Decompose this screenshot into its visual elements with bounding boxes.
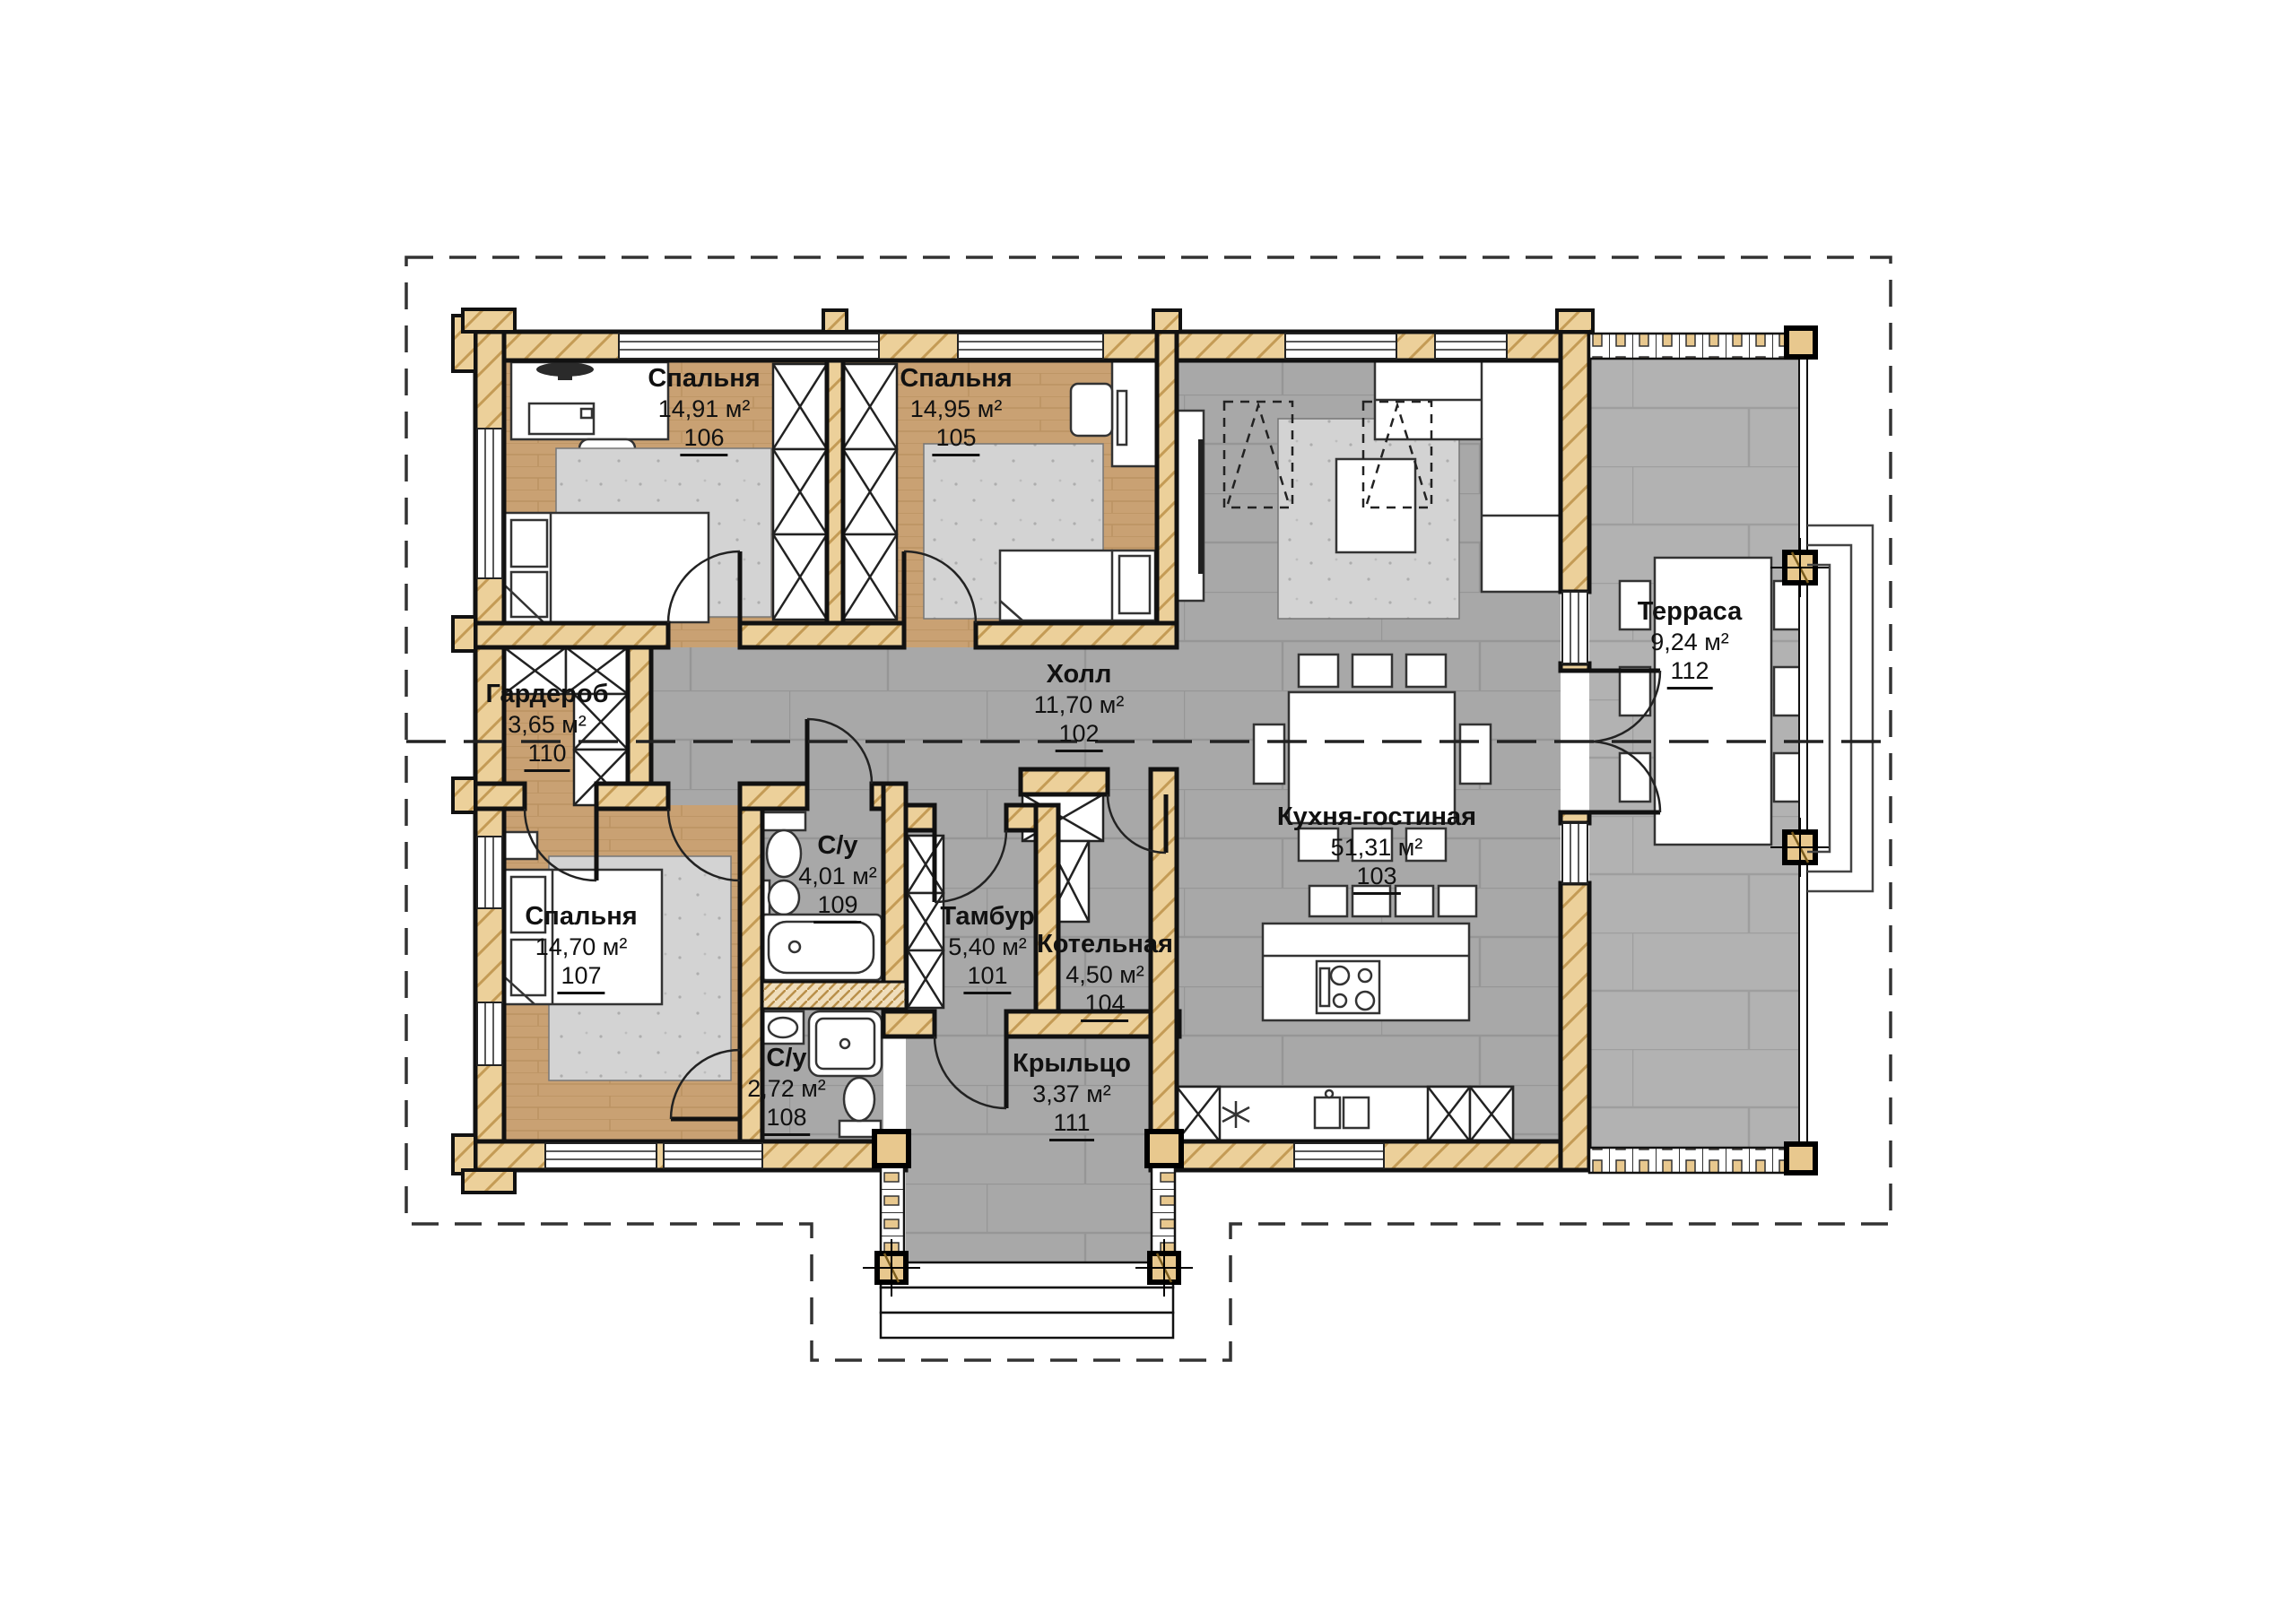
wall-wardrobe-hall — [628, 647, 651, 784]
room-area: 51,31 м² — [1277, 833, 1476, 862]
terrace-edge-right — [1799, 334, 1807, 1173]
porch-steps — [881, 1262, 1173, 1338]
room-number: 107 — [557, 961, 604, 993]
room-area: 3,37 м² — [1013, 1080, 1131, 1108]
bathtub-109 — [761, 915, 882, 980]
room-label-111: Крыльцо 3,37 м² 111 — [1013, 1048, 1131, 1141]
window-west-107b — [477, 1002, 502, 1065]
window-north-living-1 — [1285, 334, 1396, 359]
bed-106 — [504, 513, 709, 622]
room-label-109: С/у 4,01 м² 109 — [798, 830, 877, 924]
room-label-102: Холл 11,70 м² 102 — [1034, 659, 1125, 752]
room-number: 110 — [524, 739, 570, 771]
room-label-103: Кухня-гостиная 51,31 м² 103 — [1277, 802, 1476, 895]
room-number: 101 — [963, 961, 1011, 993]
window-north-living-2 — [1435, 334, 1507, 359]
room-label-106: Спальня 14,91 м² 106 — [648, 363, 760, 456]
room-number: 112 — [1666, 656, 1712, 689]
window-west-107a — [477, 837, 502, 908]
room-name: С/у — [798, 830, 877, 862]
room-area: 5,40 м² — [940, 932, 1034, 961]
room-name: Крыльцо — [1013, 1048, 1131, 1080]
wall-kitchen-terrace — [1561, 332, 1589, 592]
room-area: 9,24 м² — [1638, 628, 1743, 656]
room-area: 2,72 м² — [747, 1074, 826, 1103]
plumbing-chase — [762, 982, 906, 1009]
room-name: Спальня — [648, 363, 760, 395]
room-name: Кухня-гостиная — [1277, 802, 1476, 833]
room-number: 105 — [932, 423, 979, 455]
wall-between-bedrooms — [827, 360, 843, 623]
bed-105 — [1000, 551, 1155, 620]
room-number: 109 — [813, 890, 861, 923]
coffee-table — [1336, 459, 1415, 552]
terrace-edge-bottom — [1589, 1148, 1799, 1173]
room-area: 3,65 м² — [485, 710, 608, 739]
window-terrace-1 — [1562, 592, 1587, 664]
room-name: Спальня — [900, 363, 1012, 395]
room-label-105: Спальня 14,95 м² 105 — [900, 363, 1012, 456]
room-number: 103 — [1352, 862, 1400, 894]
wall-105-kitchen — [1157, 332, 1177, 647]
window-north-106 — [619, 334, 879, 359]
room-label-107: Спальня 14,70 м² 107 — [525, 901, 637, 994]
room-area: 4,50 м² — [1037, 960, 1173, 989]
room-label-110: Гардероб 3,65 м² 110 — [485, 679, 608, 772]
floor-plan-drawing — [0, 0, 2296, 1622]
wardrobe-106 — [773, 364, 827, 620]
room-number: 106 — [680, 423, 727, 455]
room-area: 4,01 м² — [798, 862, 877, 890]
room-area: 14,70 м² — [525, 932, 637, 961]
room-name: Терраса — [1638, 596, 1743, 628]
window-terrace-2 — [1562, 823, 1587, 883]
window-south-kitchen — [1294, 1143, 1384, 1168]
room-number: 108 — [762, 1103, 810, 1135]
wardrobe-tambour — [908, 836, 944, 1008]
wardrobe-105 — [843, 364, 897, 620]
window-south-107a — [545, 1143, 657, 1168]
room-label-112: Терраса 9,24 м² 112 — [1638, 596, 1743, 690]
room-number: 104 — [1081, 989, 1128, 1021]
room-number: 111 — [1049, 1108, 1093, 1141]
window-south-107b — [664, 1143, 762, 1168]
room-name: С/у — [747, 1043, 826, 1074]
room-name: Тамбур — [940, 901, 1034, 932]
room-name: Спальня — [525, 901, 637, 932]
nightstand-107 — [505, 832, 537, 859]
room-name: Гардероб — [485, 679, 608, 710]
room-label-101: Тамбур 5,40 м² 101 — [940, 901, 1034, 994]
terrace-edge-top — [1589, 334, 1799, 359]
room-name: Котельная — [1037, 929, 1173, 960]
room-name: Холл — [1034, 659, 1125, 690]
room-area: 11,70 м² — [1034, 690, 1125, 719]
room-label-108: С/у 2,72 м² 108 — [747, 1043, 826, 1136]
window-west-106 — [477, 429, 502, 578]
sink-109 — [761, 880, 799, 915]
window-north-105 — [958, 334, 1103, 359]
room-number: 102 — [1055, 719, 1102, 751]
room-label-104: Котельная 4,50 м² 104 — [1037, 929, 1173, 1022]
room-area: 14,91 м² — [648, 395, 760, 423]
room-area: 14,95 м² — [900, 395, 1012, 423]
tv-unit-living — [1177, 411, 1204, 601]
floor-plan-page: Спальня 14,91 м² 106 Спальня 14,95 м² 10… — [0, 0, 2296, 1622]
sink-108 — [762, 1011, 804, 1044]
